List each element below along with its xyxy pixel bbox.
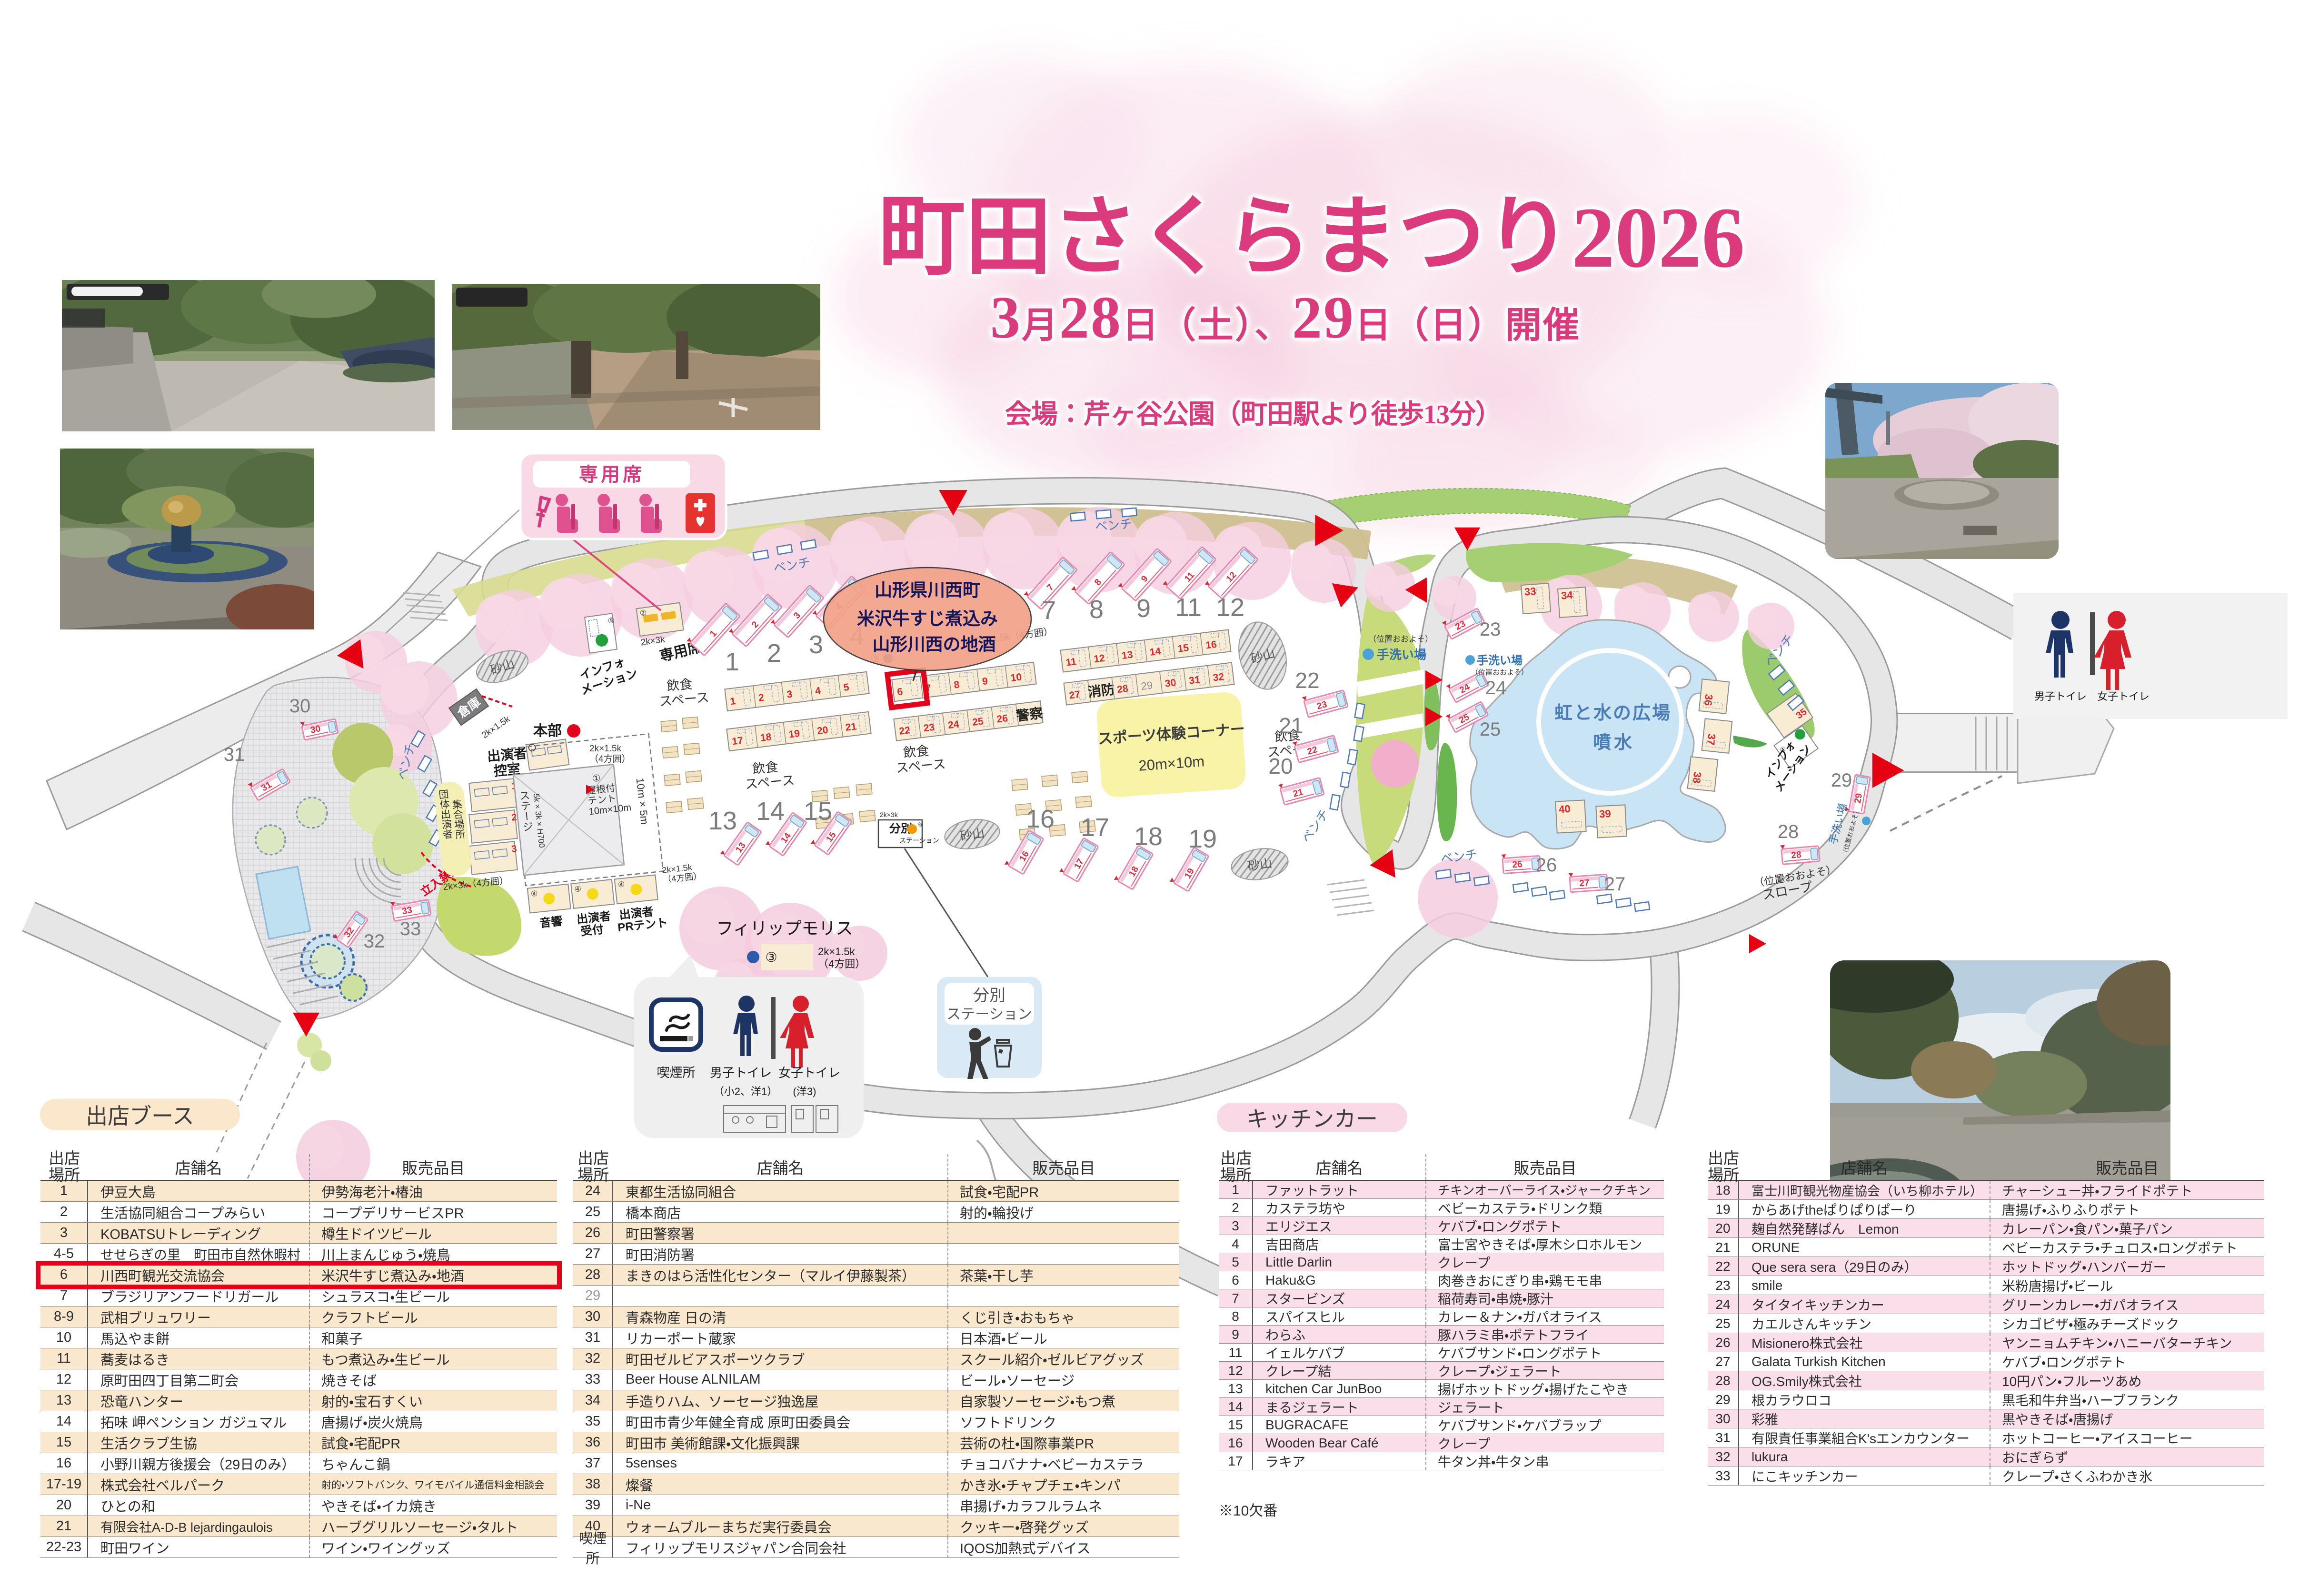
svg-text:20: 20 xyxy=(1268,754,1293,778)
svg-text:12: 12 xyxy=(1093,653,1105,665)
svg-text:18: 18 xyxy=(1134,822,1163,851)
svg-text:専用席: 専用席 xyxy=(579,464,645,485)
svg-text:2k×1.5k: 2k×1.5k xyxy=(818,946,856,958)
svg-text:28: 28 xyxy=(1778,821,1799,842)
svg-text:37: 37 xyxy=(1705,733,1718,746)
svg-text:15: 15 xyxy=(804,797,832,826)
svg-text:①: ① xyxy=(592,773,601,784)
svg-text:17: 17 xyxy=(1081,813,1109,842)
svg-text:16: 16 xyxy=(1026,805,1055,833)
svg-text:17: 17 xyxy=(731,735,744,748)
svg-text:10: 10 xyxy=(1010,671,1022,684)
svg-text:14: 14 xyxy=(756,797,785,826)
svg-text:（4方囲）: （4方囲） xyxy=(818,958,866,970)
svg-text:21: 21 xyxy=(1279,713,1303,738)
svg-text:33: 33 xyxy=(401,905,413,917)
svg-text:手洗い場: 手洗い場 xyxy=(1377,648,1426,662)
svg-text:（位置おおよそ）: （位置おおよそ） xyxy=(1471,668,1528,677)
svg-text:12: 12 xyxy=(1216,593,1244,622)
svg-text:16: 16 xyxy=(1205,639,1217,651)
svg-text:女子トイレ: 女子トイレ xyxy=(2097,690,2150,702)
svg-text:音響: 音響 xyxy=(539,915,563,930)
svg-text:山形県川西町: 山形県川西町 xyxy=(875,580,980,600)
svg-text:38: 38 xyxy=(1691,771,1703,784)
svg-text:29: 29 xyxy=(1831,770,1852,791)
svg-text:（小2、洋1）: （小2、洋1） xyxy=(714,1086,777,1097)
svg-text:⑤: ⑤ xyxy=(607,617,616,626)
svg-text:男子トイレ: 男子トイレ xyxy=(2034,690,2087,702)
svg-text:7: 7 xyxy=(1042,596,1056,625)
svg-text:32: 32 xyxy=(364,931,385,952)
svg-text:20: 20 xyxy=(816,725,829,737)
svg-text:（4方囲）: （4方囲） xyxy=(589,754,631,764)
svg-text:受付: 受付 xyxy=(580,923,604,938)
svg-text:29: 29 xyxy=(1853,793,1864,804)
svg-text:11: 11 xyxy=(1065,656,1077,668)
svg-text:④: ④ xyxy=(530,890,538,898)
svg-text:2k×3k: 2k×3k xyxy=(880,811,898,818)
svg-text:3: 3 xyxy=(809,630,823,659)
svg-text:33: 33 xyxy=(1524,585,1536,598)
svg-text:飲食: 飲食 xyxy=(903,744,929,760)
svg-text:18: 18 xyxy=(760,731,772,744)
svg-text:11: 11 xyxy=(1175,593,1202,622)
svg-text:30: 30 xyxy=(289,696,311,717)
svg-text:③: ③ xyxy=(765,950,777,965)
svg-text:22: 22 xyxy=(1295,668,1319,693)
svg-text:（位置おおよそ）: （位置おおよそ） xyxy=(1368,635,1433,644)
svg-text:19: 19 xyxy=(1188,825,1217,853)
svg-text:飲食: 飲食 xyxy=(752,760,778,777)
svg-text:②: ② xyxy=(639,609,647,618)
svg-text:警察: 警察 xyxy=(1015,705,1044,724)
svg-text:28: 28 xyxy=(1791,850,1802,861)
svg-text:ステーション: ステーション xyxy=(946,1007,1032,1022)
svg-text:26: 26 xyxy=(1512,859,1523,870)
svg-text:分別: 分別 xyxy=(973,987,1005,1005)
svg-text:23: 23 xyxy=(1480,619,1501,640)
svg-text:ステーション: ステーション xyxy=(899,837,939,844)
svg-text:(洋3): (洋3) xyxy=(793,1086,816,1097)
svg-text:40: 40 xyxy=(1559,803,1571,815)
svg-text:女子トイレ: 女子トイレ xyxy=(778,1066,840,1080)
svg-text:33: 33 xyxy=(400,918,421,939)
svg-text:2: 2 xyxy=(767,639,781,668)
svg-text:29: 29 xyxy=(1140,679,1153,692)
svg-text:27: 27 xyxy=(1579,878,1590,888)
svg-text:9: 9 xyxy=(1136,594,1151,623)
svg-text:⑥: ⑥ xyxy=(918,821,924,828)
svg-text:19: 19 xyxy=(788,728,800,740)
svg-text:15: 15 xyxy=(1177,642,1189,655)
svg-text:14: 14 xyxy=(1149,646,1162,658)
svg-text:13: 13 xyxy=(1121,649,1134,661)
svg-text:30: 30 xyxy=(309,724,321,736)
svg-text:手洗い場: 手洗い場 xyxy=(1477,654,1523,667)
svg-text:喫煙所: 喫煙所 xyxy=(657,1066,696,1080)
svg-text:27: 27 xyxy=(1604,874,1626,895)
svg-text:21: 21 xyxy=(845,721,857,733)
svg-text:虹と水の広場: 虹と水の広場 xyxy=(1554,703,1672,723)
svg-text:36: 36 xyxy=(1702,694,1715,707)
svg-text:2: 2 xyxy=(511,812,517,823)
svg-text:26: 26 xyxy=(1536,855,1557,876)
svg-text:フィリップモリス: フィリップモリス xyxy=(716,918,853,938)
svg-text:2k×1.5k: 2k×1.5k xyxy=(589,744,622,754)
svg-text:④: ④ xyxy=(617,880,625,889)
svg-text:31: 31 xyxy=(224,744,245,765)
svg-text:25: 25 xyxy=(1480,719,1501,740)
svg-text:④: ④ xyxy=(574,885,582,894)
svg-text:本部: 本部 xyxy=(533,723,562,739)
svg-text:噴水: 噴水 xyxy=(1593,733,1635,753)
svg-text:米沢牛すじ煮込み: 米沢牛すじ煮込み xyxy=(857,609,998,629)
svg-text:39: 39 xyxy=(1599,808,1612,820)
svg-text:24: 24 xyxy=(1485,678,1507,698)
svg-text:3: 3 xyxy=(511,844,517,855)
svg-text:山形川西の地酒: 山形川西の地酒 xyxy=(873,635,996,655)
svg-text:飲食: 飲食 xyxy=(666,677,693,694)
svg-text:男子トイレ: 男子トイレ xyxy=(710,1066,772,1080)
svg-text:1: 1 xyxy=(725,648,739,676)
svg-text:13: 13 xyxy=(708,807,737,835)
svg-text:34: 34 xyxy=(1561,589,1573,602)
svg-text:8: 8 xyxy=(1089,595,1104,624)
